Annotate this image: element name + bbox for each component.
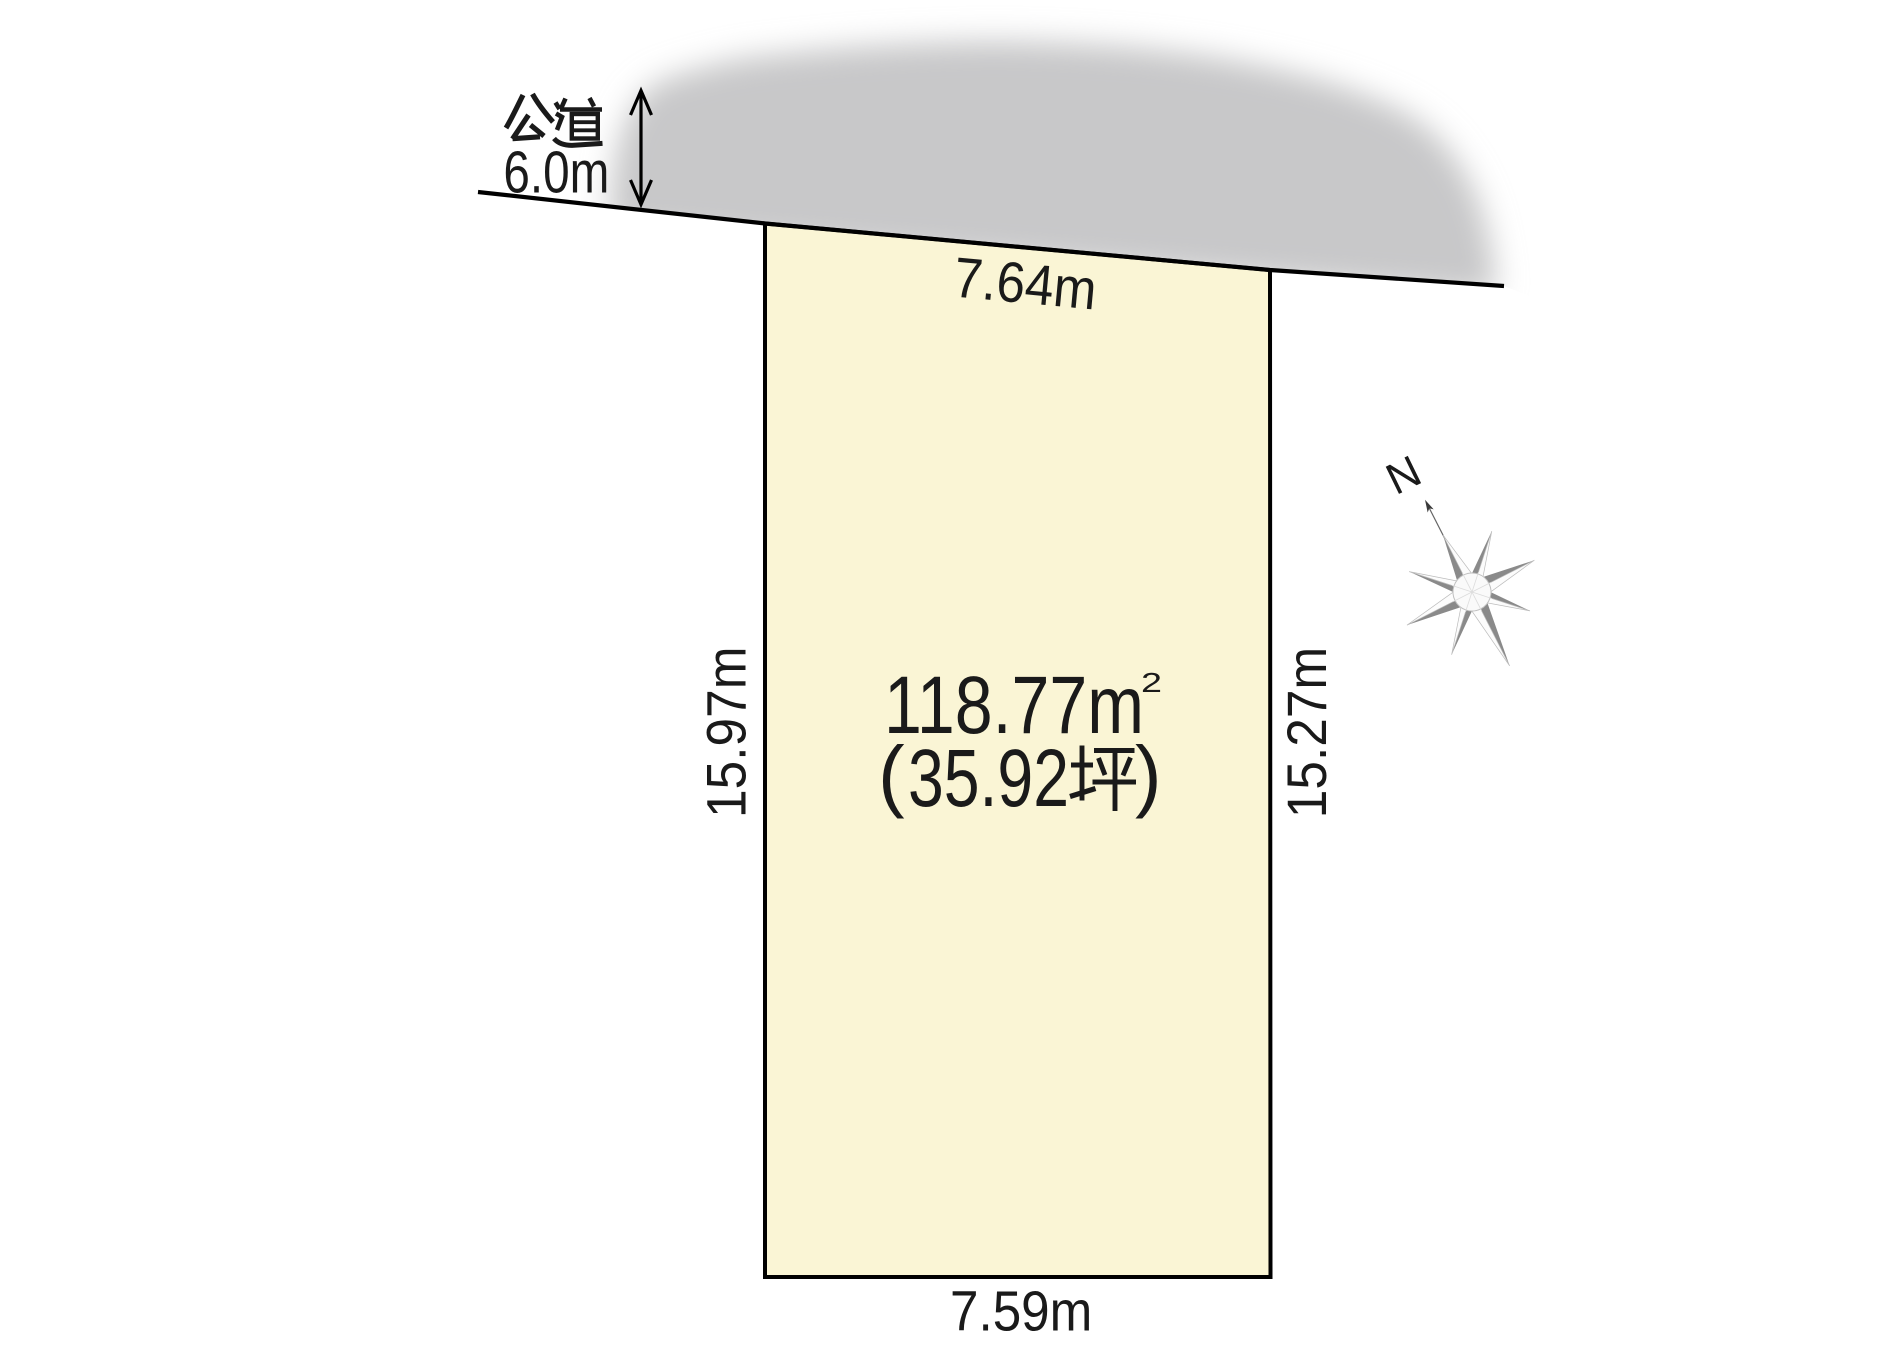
svg-text:35.92: 35.92 — [908, 733, 1069, 824]
svg-text:(: ( — [878, 730, 905, 819]
svg-text:7.64m: 7.64m — [951, 246, 1099, 323]
svg-text:): ) — [1135, 730, 1162, 819]
svg-text:2: 2 — [1141, 667, 1162, 698]
svg-text:7.59m: 7.59m — [950, 1280, 1092, 1344]
svg-text:6.0m: 6.0m — [503, 140, 609, 206]
svg-text:15.97m: 15.97m — [695, 646, 758, 818]
svg-text:15.27m: 15.27m — [1275, 647, 1338, 819]
